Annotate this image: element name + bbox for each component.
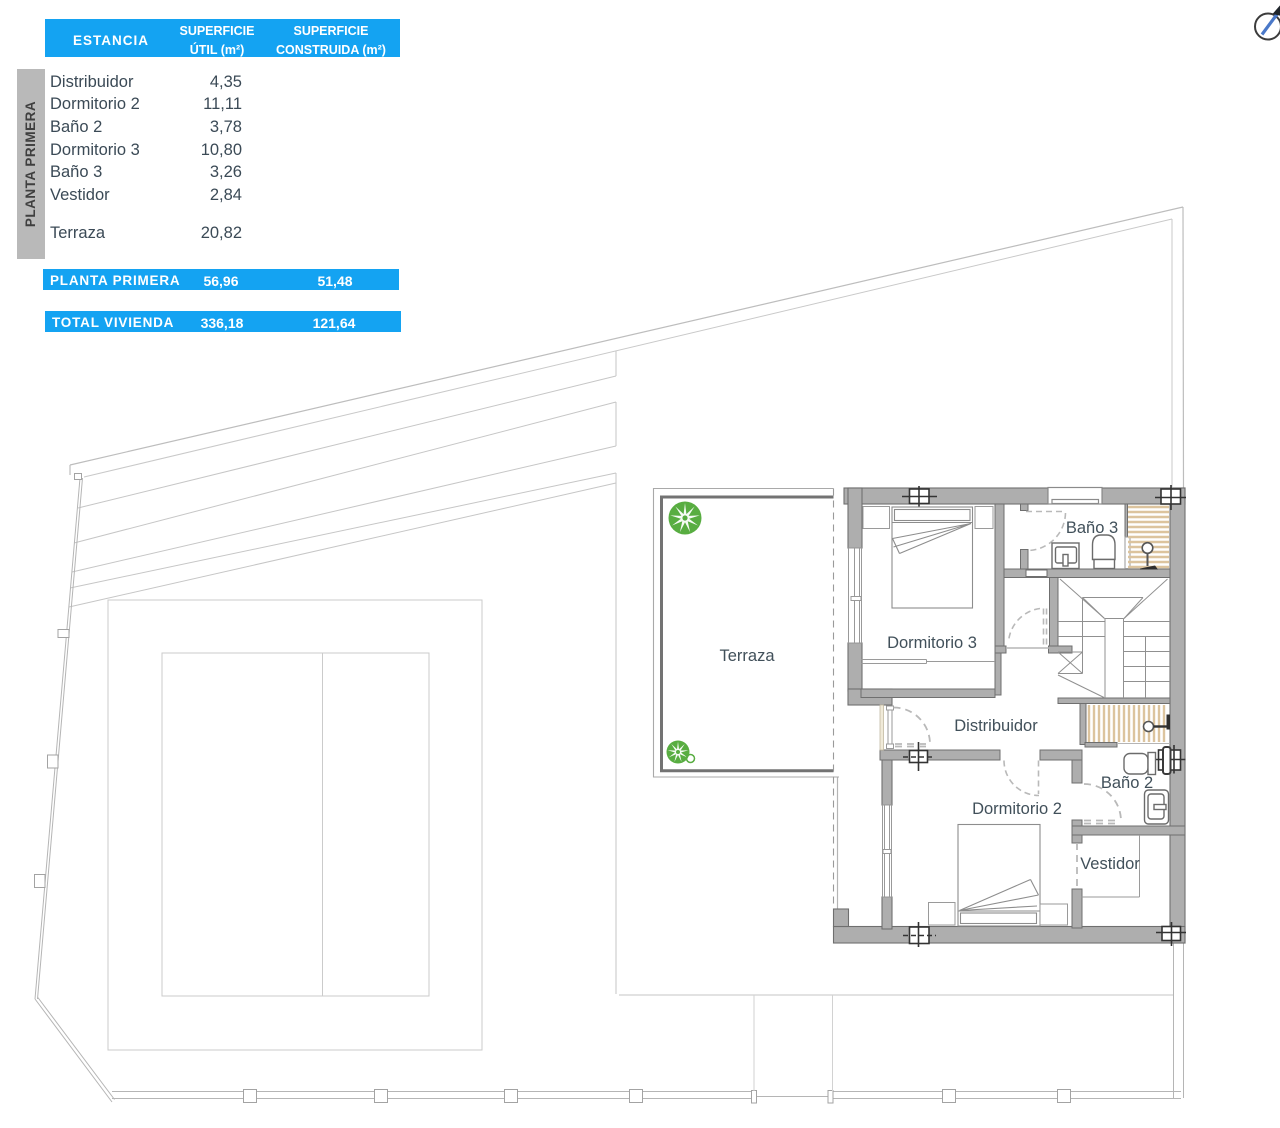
svg-text:Terraza: Terraza: [719, 647, 775, 665]
svg-text:Baño 2: Baño 2: [1101, 774, 1153, 792]
svg-text:Dormitorio 2: Dormitorio 2: [972, 800, 1062, 818]
svg-text:Distribuidor: Distribuidor: [954, 717, 1038, 735]
svg-text:Baño 3: Baño 3: [1066, 519, 1118, 537]
svg-text:Dormitorio 3: Dormitorio 3: [887, 634, 977, 652]
svg-text:Vestidor: Vestidor: [1080, 855, 1140, 873]
